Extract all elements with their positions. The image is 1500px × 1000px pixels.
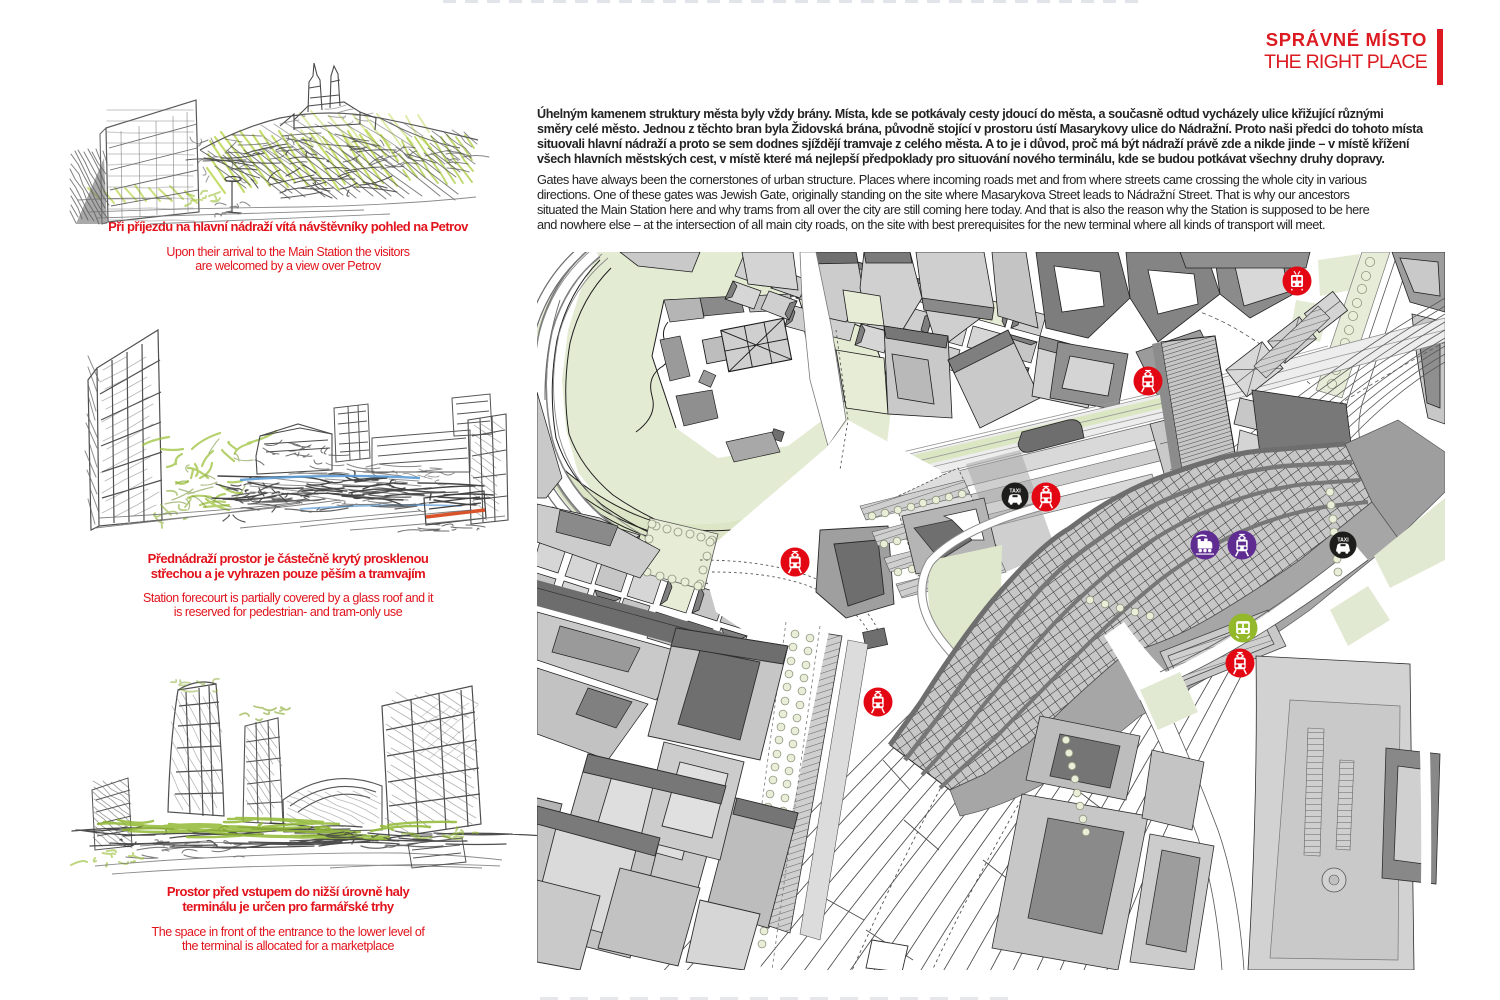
svg-text:TAXI: TAXI bbox=[1009, 489, 1021, 495]
svg-text:TAXI: TAXI bbox=[1337, 538, 1349, 544]
